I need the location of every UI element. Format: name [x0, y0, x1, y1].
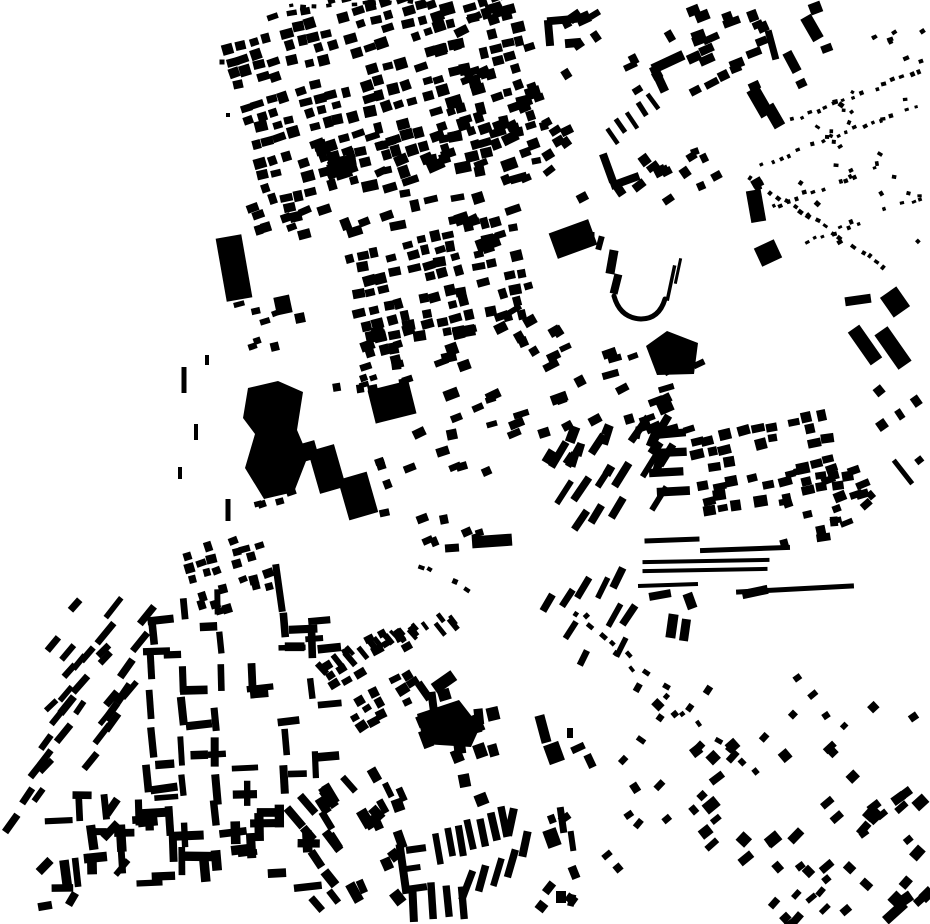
- building: [200, 622, 218, 631]
- building: [214, 589, 220, 614]
- building: [875, 161, 879, 166]
- building: [288, 770, 307, 777]
- building: [832, 481, 844, 491]
- building: [829, 129, 833, 133]
- building: [145, 809, 154, 831]
- building: [232, 765, 259, 772]
- building: [442, 327, 452, 336]
- building: [567, 728, 573, 738]
- speck: [226, 113, 230, 117]
- building: [169, 833, 178, 862]
- building: [135, 799, 143, 825]
- building: [768, 433, 778, 442]
- building: [420, 1, 426, 6]
- building: [45, 817, 73, 824]
- building: [892, 175, 897, 179]
- building: [388, 342, 400, 355]
- building: [422, 309, 432, 319]
- building: [413, 330, 427, 342]
- thin-bar: [205, 355, 209, 365]
- building: [445, 544, 460, 553]
- building: [275, 805, 284, 828]
- building: [917, 194, 921, 197]
- building: [143, 647, 170, 655]
- building: [356, 261, 369, 273]
- building: [696, 480, 708, 491]
- building: [825, 135, 829, 139]
- building: [446, 428, 458, 440]
- building: [517, 269, 527, 279]
- thin-bar: [178, 467, 182, 479]
- building: [707, 446, 718, 456]
- building: [75, 793, 83, 822]
- figure-ground-map: [0, 0, 930, 924]
- building: [408, 890, 417, 922]
- building: [820, 433, 834, 444]
- building: [289, 624, 318, 633]
- building: [703, 505, 717, 517]
- building: [268, 868, 287, 878]
- building: [152, 872, 176, 881]
- building: [300, 4, 306, 9]
- building: [181, 822, 189, 847]
- building: [248, 663, 257, 688]
- building: [230, 821, 240, 844]
- building: [183, 851, 213, 861]
- building: [657, 486, 691, 497]
- building: [289, 3, 294, 7]
- building: [87, 854, 97, 875]
- building: [832, 140, 836, 144]
- building: [590, 232, 595, 240]
- building: [343, 154, 356, 167]
- building: [352, 2, 358, 6]
- building: [730, 499, 742, 511]
- building: [723, 456, 736, 468]
- thin-bar: [182, 367, 187, 393]
- building: [445, 240, 456, 252]
- building: [833, 163, 838, 167]
- building: [285, 642, 305, 651]
- map-canvas: [0, 0, 930, 924]
- building: [178, 847, 185, 875]
- building: [254, 813, 264, 841]
- building: [439, 514, 449, 525]
- speck: [220, 60, 225, 65]
- building: [387, 0, 392, 4]
- building: [363, 1, 368, 5]
- building: [804, 423, 815, 434]
- building: [180, 685, 208, 694]
- building: [208, 751, 226, 758]
- building: [556, 891, 566, 903]
- building: [371, 0, 376, 5]
- building: [155, 759, 175, 769]
- building: [312, 4, 317, 8]
- building: [565, 38, 582, 48]
- building: [458, 62, 471, 76]
- building: [753, 494, 768, 507]
- building: [217, 664, 224, 691]
- building: [326, 3, 332, 7]
- building: [279, 765, 289, 794]
- building: [246, 833, 256, 859]
- building: [233, 790, 257, 799]
- thin-bar: [194, 424, 198, 440]
- building: [712, 489, 726, 501]
- building: [830, 516, 839, 526]
- building: [294, 312, 306, 324]
- thin-bar: [226, 499, 231, 521]
- building: [174, 830, 204, 840]
- building: [211, 850, 222, 871]
- building: [842, 108, 846, 112]
- building: [356, 384, 365, 393]
- building: [418, 293, 429, 304]
- building: [332, 383, 341, 392]
- building: [190, 750, 208, 759]
- building: [402, 319, 416, 332]
- building: [903, 98, 908, 102]
- building: [654, 447, 687, 457]
- building: [474, 165, 486, 177]
